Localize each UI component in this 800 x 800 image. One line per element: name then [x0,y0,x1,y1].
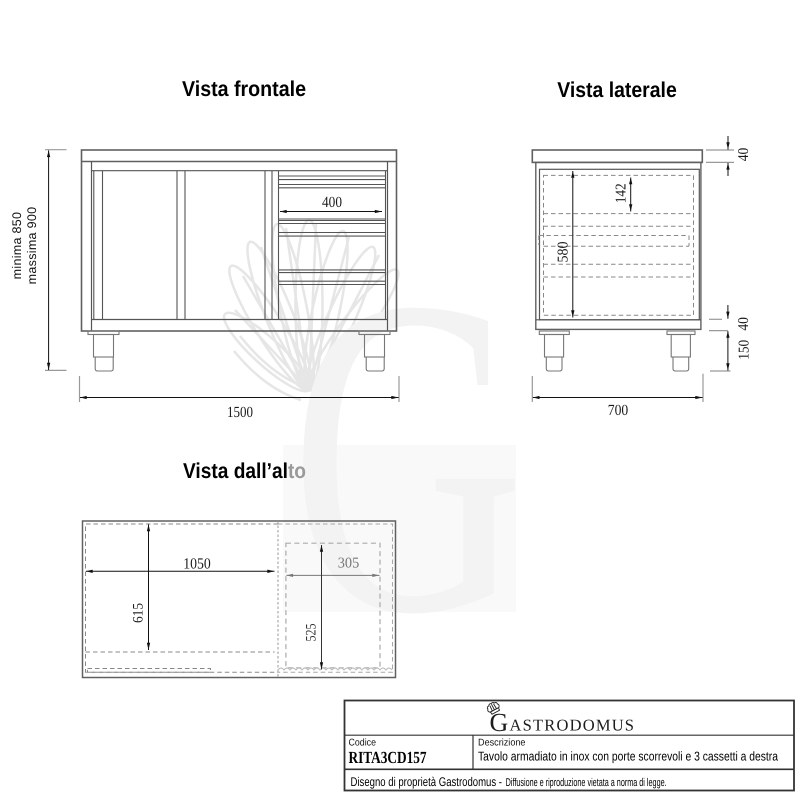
svg-text:615: 615 [131,603,147,623]
svg-text:525: 525 [304,624,320,642]
svg-text:40: 40 [736,148,752,162]
svg-text:massima 900: massima 900 [25,207,39,285]
svg-text:G: G [490,708,509,737]
svg-text:G: G [290,205,525,708]
svg-text:1050: 1050 [183,556,211,573]
svg-text:ASTRODOMUS: ASTRODOMUS [510,716,636,735]
svg-text:580: 580 [556,242,572,263]
svg-text:minima 850: minima 850 [10,212,24,280]
svg-text:305: 305 [338,556,360,572]
svg-text:Descrizione: Descrizione [478,738,526,749]
svg-text:150: 150 [737,340,753,360]
svg-text:RITA3CD157: RITA3CD157 [349,748,427,767]
svg-text:Disegno di proprietà Gastrodom: Disegno di proprietà Gastrodomus - Diffu… [351,774,667,789]
svg-text:1500: 1500 [227,404,253,421]
svg-text:Vista frontale: Vista frontale [182,77,306,101]
svg-text:142: 142 [614,183,630,203]
svg-text:Codice: Codice [349,738,377,749]
svg-text:Vista laterale: Vista laterale [557,78,677,102]
svg-text:400: 400 [322,194,342,211]
svg-text:Vista dall’alto: Vista dall’alto [183,459,306,483]
svg-text:40: 40 [736,317,752,331]
svg-text:700: 700 [608,402,629,419]
svg-text:Tavolo armadiato in inox con p: Tavolo armadiato in inox con porte scorr… [478,749,779,764]
